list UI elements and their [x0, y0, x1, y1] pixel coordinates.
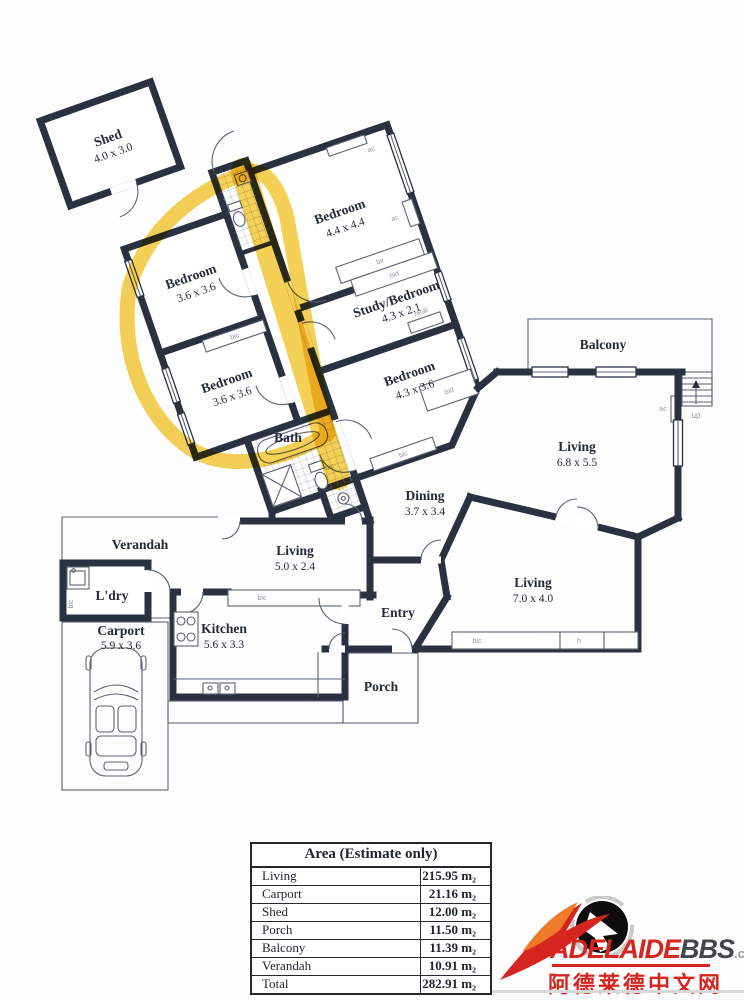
room-label: Living — [276, 543, 314, 558]
room-dims: 5.9 x 3.6 — [101, 640, 142, 652]
table-row: Porch11.50 m₂ — [251, 922, 491, 940]
room-label: Kitchen — [201, 621, 247, 636]
area-row-label: Carport — [251, 886, 421, 904]
area-row-label: Balcony — [251, 940, 421, 958]
stove — [174, 612, 198, 646]
brand-line: ADELAIDEBBS.com — [550, 934, 744, 965]
area-row-value: 11.50 m₂ — [421, 922, 492, 940]
car-icon — [86, 648, 146, 776]
room-dims: 3.7 x 3.4 — [405, 506, 446, 518]
brand-bbs: BBS — [680, 934, 734, 964]
room-label: Carport — [97, 623, 145, 638]
area-row-label: Shed — [251, 904, 421, 922]
table-row: Verandah10.91 m₂ — [251, 958, 491, 976]
adelaidebbs-watermark: ADELAIDEBBS.com 阿德莱德中文网 — [492, 896, 744, 996]
room-label: L'dry — [95, 588, 128, 603]
area-row-value: 10.91 m₂ — [421, 958, 492, 976]
area-row-value: 282.91 m₂ — [421, 976, 492, 995]
h-label: h — [577, 638, 581, 645]
area-row-value: 215.95 m₂ — [421, 867, 492, 886]
area-row-label: Verandah — [251, 958, 421, 976]
bic-label-4: bic — [258, 595, 267, 602]
room-dims: 6.8 x 5.5 — [557, 457, 598, 469]
ac-label-3: ac — [659, 406, 667, 413]
bic-label-5: bic — [473, 638, 482, 645]
room-label: Entry — [381, 605, 415, 620]
table-row: Shed12.00 m₂ — [251, 904, 491, 922]
sink — [203, 683, 218, 694]
stairs: up ac — [659, 372, 712, 422]
room-label: Living — [514, 575, 552, 590]
room-label: Verandah — [112, 537, 169, 552]
room-label: Dining — [405, 488, 444, 503]
room-dims: 5.0 x 2.4 — [275, 561, 316, 573]
brand-adelaide: ADELAIDE — [550, 934, 680, 964]
brand-tld: .com — [734, 946, 744, 961]
balcony-outline — [528, 319, 712, 406]
room-shed: Shed 4.0 x 3.0 — [40, 82, 189, 231]
area-row-label: Porch — [251, 922, 421, 940]
room-label: Balcony — [580, 337, 627, 352]
room-label: Living — [558, 439, 596, 454]
area-table-title: Area (Estimate only) — [251, 843, 491, 867]
room-label: Porch — [364, 679, 399, 694]
area-row-value: 12.00 m₂ — [421, 904, 492, 922]
living-windows — [532, 367, 683, 466]
table-row: Living215.95 m₂ — [251, 867, 491, 886]
area-row-value: 11.39 m₂ — [421, 940, 492, 958]
room-dims: 5.6 x 3.3 — [204, 639, 245, 651]
up-label: up — [692, 411, 701, 420]
area-row-value: 21.16 m₂ — [421, 886, 492, 904]
table-row: Balcony11.39 m₂ — [251, 940, 491, 958]
room-dims: 7.0 x 4.0 — [513, 593, 554, 605]
bic-label-6: bic — [68, 599, 75, 608]
kitchen-fixtures — [173, 612, 345, 697]
table-row: Carport21.16 m₂ — [251, 886, 491, 904]
area-row-label: Living — [251, 867, 421, 886]
bottom-gray-bar — [492, 990, 744, 993]
area-table: Area (Estimate only) Living215.95 m₂ Car… — [250, 842, 492, 995]
area-row-label: Total — [251, 976, 421, 995]
table-row: Total282.91 m₂ — [251, 976, 491, 995]
porch-strip — [168, 701, 343, 723]
floorplan-image: Shed 4.0 x 3.0 bir bid b — [0, 0, 744, 1000]
brand-chinese: 阿德莱德中文网 — [548, 967, 723, 999]
